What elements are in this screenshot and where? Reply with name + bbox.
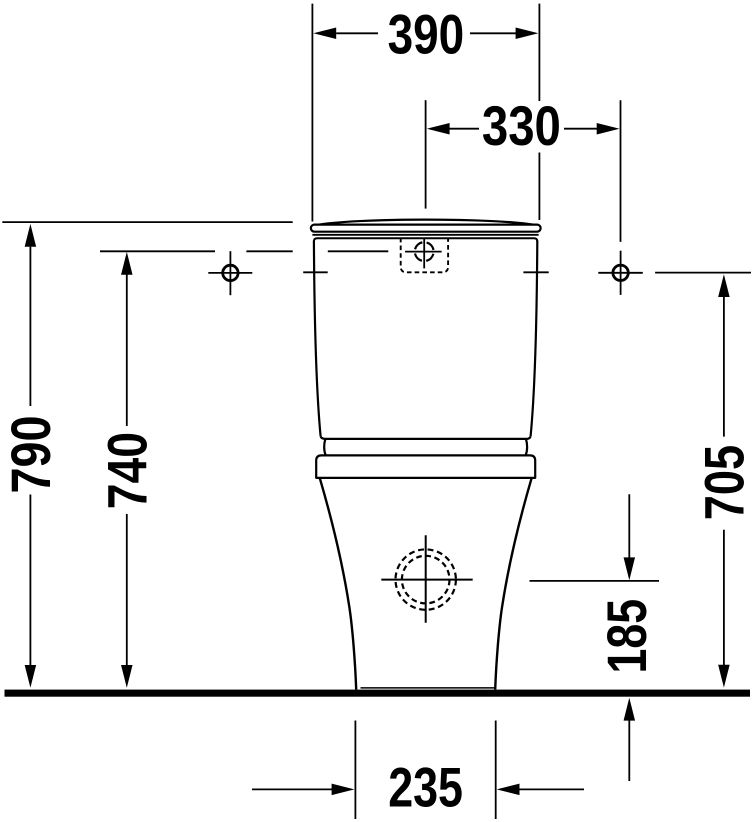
svg-text:235: 235 — [388, 756, 463, 819]
svg-text:790: 790 — [0, 416, 62, 494]
svg-text:705: 705 — [692, 445, 755, 520]
svg-text:740: 740 — [96, 432, 159, 509]
svg-text:390: 390 — [388, 3, 465, 66]
svg-text:330: 330 — [482, 94, 561, 157]
svg-text:185: 185 — [595, 599, 658, 674]
